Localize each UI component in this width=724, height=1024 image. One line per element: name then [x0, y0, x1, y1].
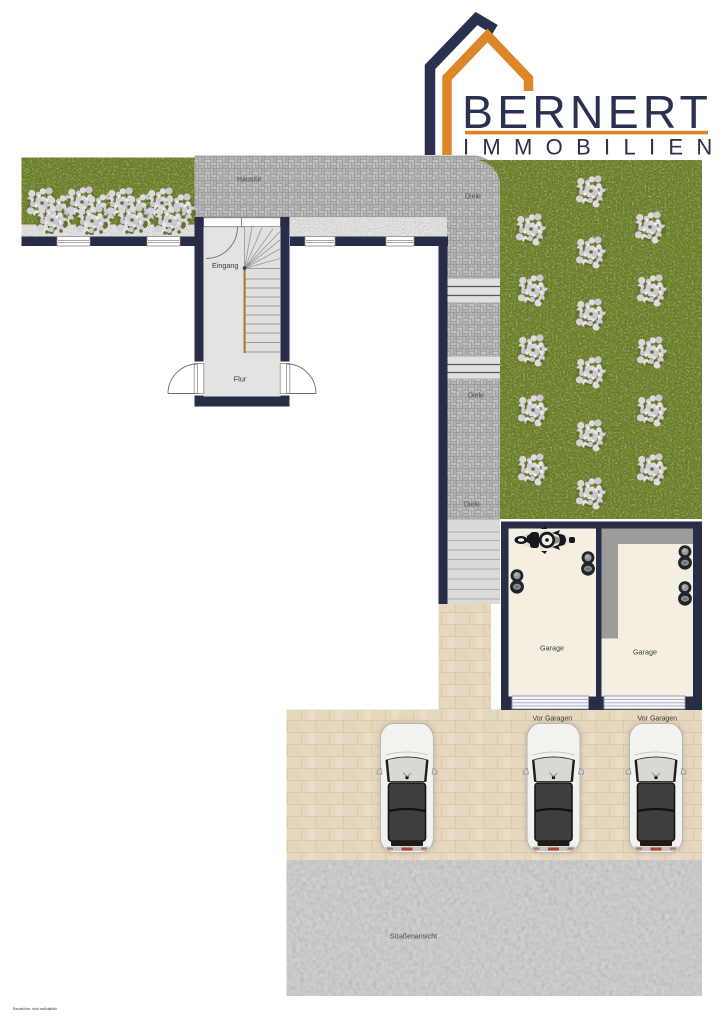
svg-text:BERNERT: BERNERT [462, 86, 712, 138]
svg-text:Straßenansicht: Straßenansicht [390, 934, 437, 941]
svg-text:Diele: Diele [465, 194, 481, 201]
svg-text:IMMOBILIEN: IMMOBILIEN [463, 135, 724, 160]
svg-text:Flur: Flur [234, 375, 247, 384]
svg-text:Vor Garagen: Vor Garagen [638, 716, 678, 723]
svg-text:Garage: Garage [540, 644, 564, 653]
svg-text:Raumhöhen, nicht maßstäblich: Raumhöhen, nicht maßstäblich [13, 1007, 57, 1011]
svg-text:Vor Garagen: Vor Garagen [533, 716, 573, 723]
svg-text:Diele: Diele [464, 502, 480, 509]
svg-text:Haustür: Haustür [237, 177, 262, 184]
svg-text:Garage: Garage [633, 648, 657, 657]
svg-text:Diele: Diele [468, 393, 484, 400]
svg-text:Eingang: Eingang [212, 261, 238, 270]
